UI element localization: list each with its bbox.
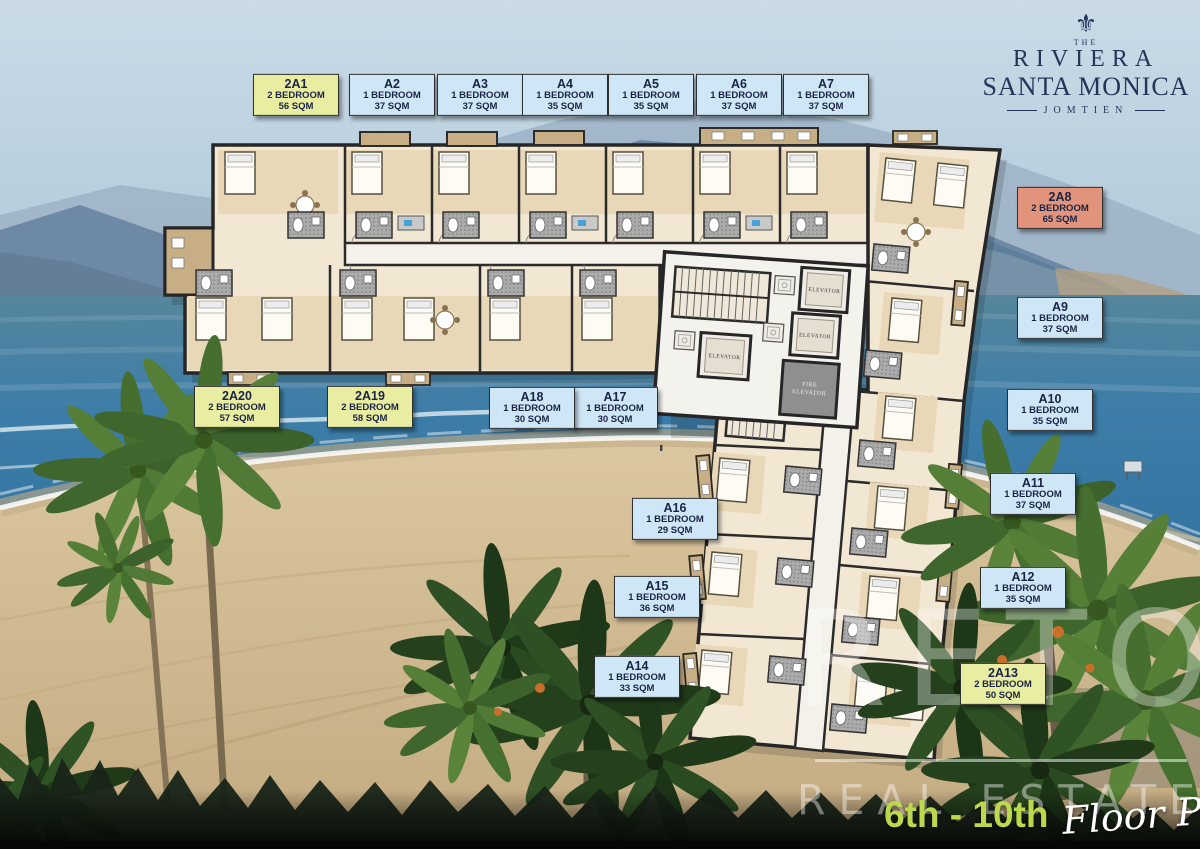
unit-info: 33 SQM — [595, 684, 679, 695]
unit-info: 37 SQM — [991, 501, 1075, 512]
unit-info: 65 SQM — [1018, 215, 1102, 226]
unit-label-A18: A181 BEDROOM30 SQM — [489, 387, 575, 429]
unit-info: 37 SQM — [350, 102, 434, 113]
unit-info: 37 SQM — [784, 102, 868, 113]
unit-info: 50 SQM — [961, 691, 1045, 702]
unit-id: A12 — [981, 570, 1065, 584]
unit-id: A10 — [1008, 392, 1092, 406]
unit-id: A15 — [615, 579, 699, 593]
floor-range-caption: 6th - 10th Floor Plan — [884, 792, 1200, 836]
unit-label-2A1: 2A12 BEDROOM56 SQM — [253, 74, 339, 116]
unit-info: 30 SQM — [490, 415, 574, 426]
unit-id: A16 — [633, 501, 717, 515]
logo-brand: RIVIERA — [980, 47, 1192, 72]
unit-id: 2A19 — [328, 389, 412, 403]
unit-label-2A19: 2A192 BEDROOM58 SQM — [327, 386, 413, 428]
unit-label-A7: A71 BEDROOM37 SQM — [783, 74, 869, 116]
unit-labels-layer: 2A12 BEDROOM56 SQMA21 BEDROOM37 SQMA31 B… — [0, 0, 1200, 849]
unit-id: A2 — [350, 77, 434, 91]
unit-label-2A8: 2A82 BEDROOM65 SQM — [1017, 187, 1103, 229]
unit-id: 2A1 — [254, 77, 338, 91]
unit-info: 35 SQM — [609, 102, 693, 113]
unit-label-A3: A31 BEDROOM37 SQM — [437, 74, 523, 116]
unit-label-2A13: 2A132 BEDROOM50 SQM — [960, 663, 1046, 705]
logo-location: SANTA MONICA — [980, 72, 1192, 102]
unit-id: A4 — [523, 77, 607, 91]
unit-label-A2: A21 BEDROOM37 SQM — [349, 74, 435, 116]
unit-label-2A20: 2A202 BEDROOM57 SQM — [194, 386, 280, 428]
unit-info: 56 SQM — [254, 102, 338, 113]
logo-rule-left — [1007, 110, 1037, 111]
unit-id: A7 — [784, 77, 868, 91]
unit-id: A3 — [438, 77, 522, 91]
unit-label-A9: A91 BEDROOM37 SQM — [1017, 297, 1103, 339]
unit-label-A11: A111 BEDROOM37 SQM — [990, 473, 1076, 515]
unit-info: 30 SQM — [573, 415, 657, 426]
unit-label-A4: A41 BEDROOM35 SQM — [522, 74, 608, 116]
logo-rule-right — [1135, 110, 1165, 111]
unit-label-A14: A141 BEDROOM33 SQM — [594, 656, 680, 698]
unit-info: 35 SQM — [1008, 417, 1092, 428]
unit-id: A5 — [609, 77, 693, 91]
project-logo: ⚜ THE RIVIERA SANTA MONICA JOMTIEN — [980, 12, 1192, 116]
unit-label-A15: A151 BEDROOM36 SQM — [614, 576, 700, 618]
unit-info: 58 SQM — [328, 414, 412, 425]
unit-id: 2A13 — [961, 666, 1045, 680]
fleur-de-lis-icon: ⚜ — [980, 12, 1192, 37]
unit-info: 37 SQM — [697, 102, 781, 113]
unit-id: A14 — [595, 659, 679, 673]
unit-info: 37 SQM — [1018, 325, 1102, 336]
unit-label-A17: A171 BEDROOM30 SQM — [572, 387, 658, 429]
unit-label-A10: A101 BEDROOM35 SQM — [1007, 389, 1093, 431]
floor-plan-script: Floor Plan — [1061, 785, 1200, 843]
unit-id: A9 — [1018, 300, 1102, 314]
unit-info: 35 SQM — [981, 595, 1065, 606]
logo-sub: JOMTIEN — [1044, 105, 1129, 116]
unit-id: A18 — [490, 390, 574, 404]
unit-id: A17 — [573, 390, 657, 404]
unit-info: 29 SQM — [633, 526, 717, 537]
floor-range: 6th - 10th — [884, 794, 1048, 836]
unit-info: 37 SQM — [438, 102, 522, 113]
floorplan-marketing-image: ELEVATOR ELEVATOR ELEVATOR FIRE ELEVATOR — [0, 0, 1200, 849]
unit-label-A6: A61 BEDROOM37 SQM — [696, 74, 782, 116]
unit-id: A11 — [991, 476, 1075, 490]
unit-info: 35 SQM — [523, 102, 607, 113]
unit-id: A6 — [697, 77, 781, 91]
unit-id: 2A8 — [1018, 190, 1102, 204]
unit-id: 2A20 — [195, 389, 279, 403]
unit-info: 57 SQM — [195, 414, 279, 425]
unit-label-A5: A51 BEDROOM35 SQM — [608, 74, 694, 116]
unit-info: 36 SQM — [615, 604, 699, 615]
unit-label-A12: A121 BEDROOM35 SQM — [980, 567, 1066, 609]
unit-label-A16: A161 BEDROOM29 SQM — [632, 498, 718, 540]
